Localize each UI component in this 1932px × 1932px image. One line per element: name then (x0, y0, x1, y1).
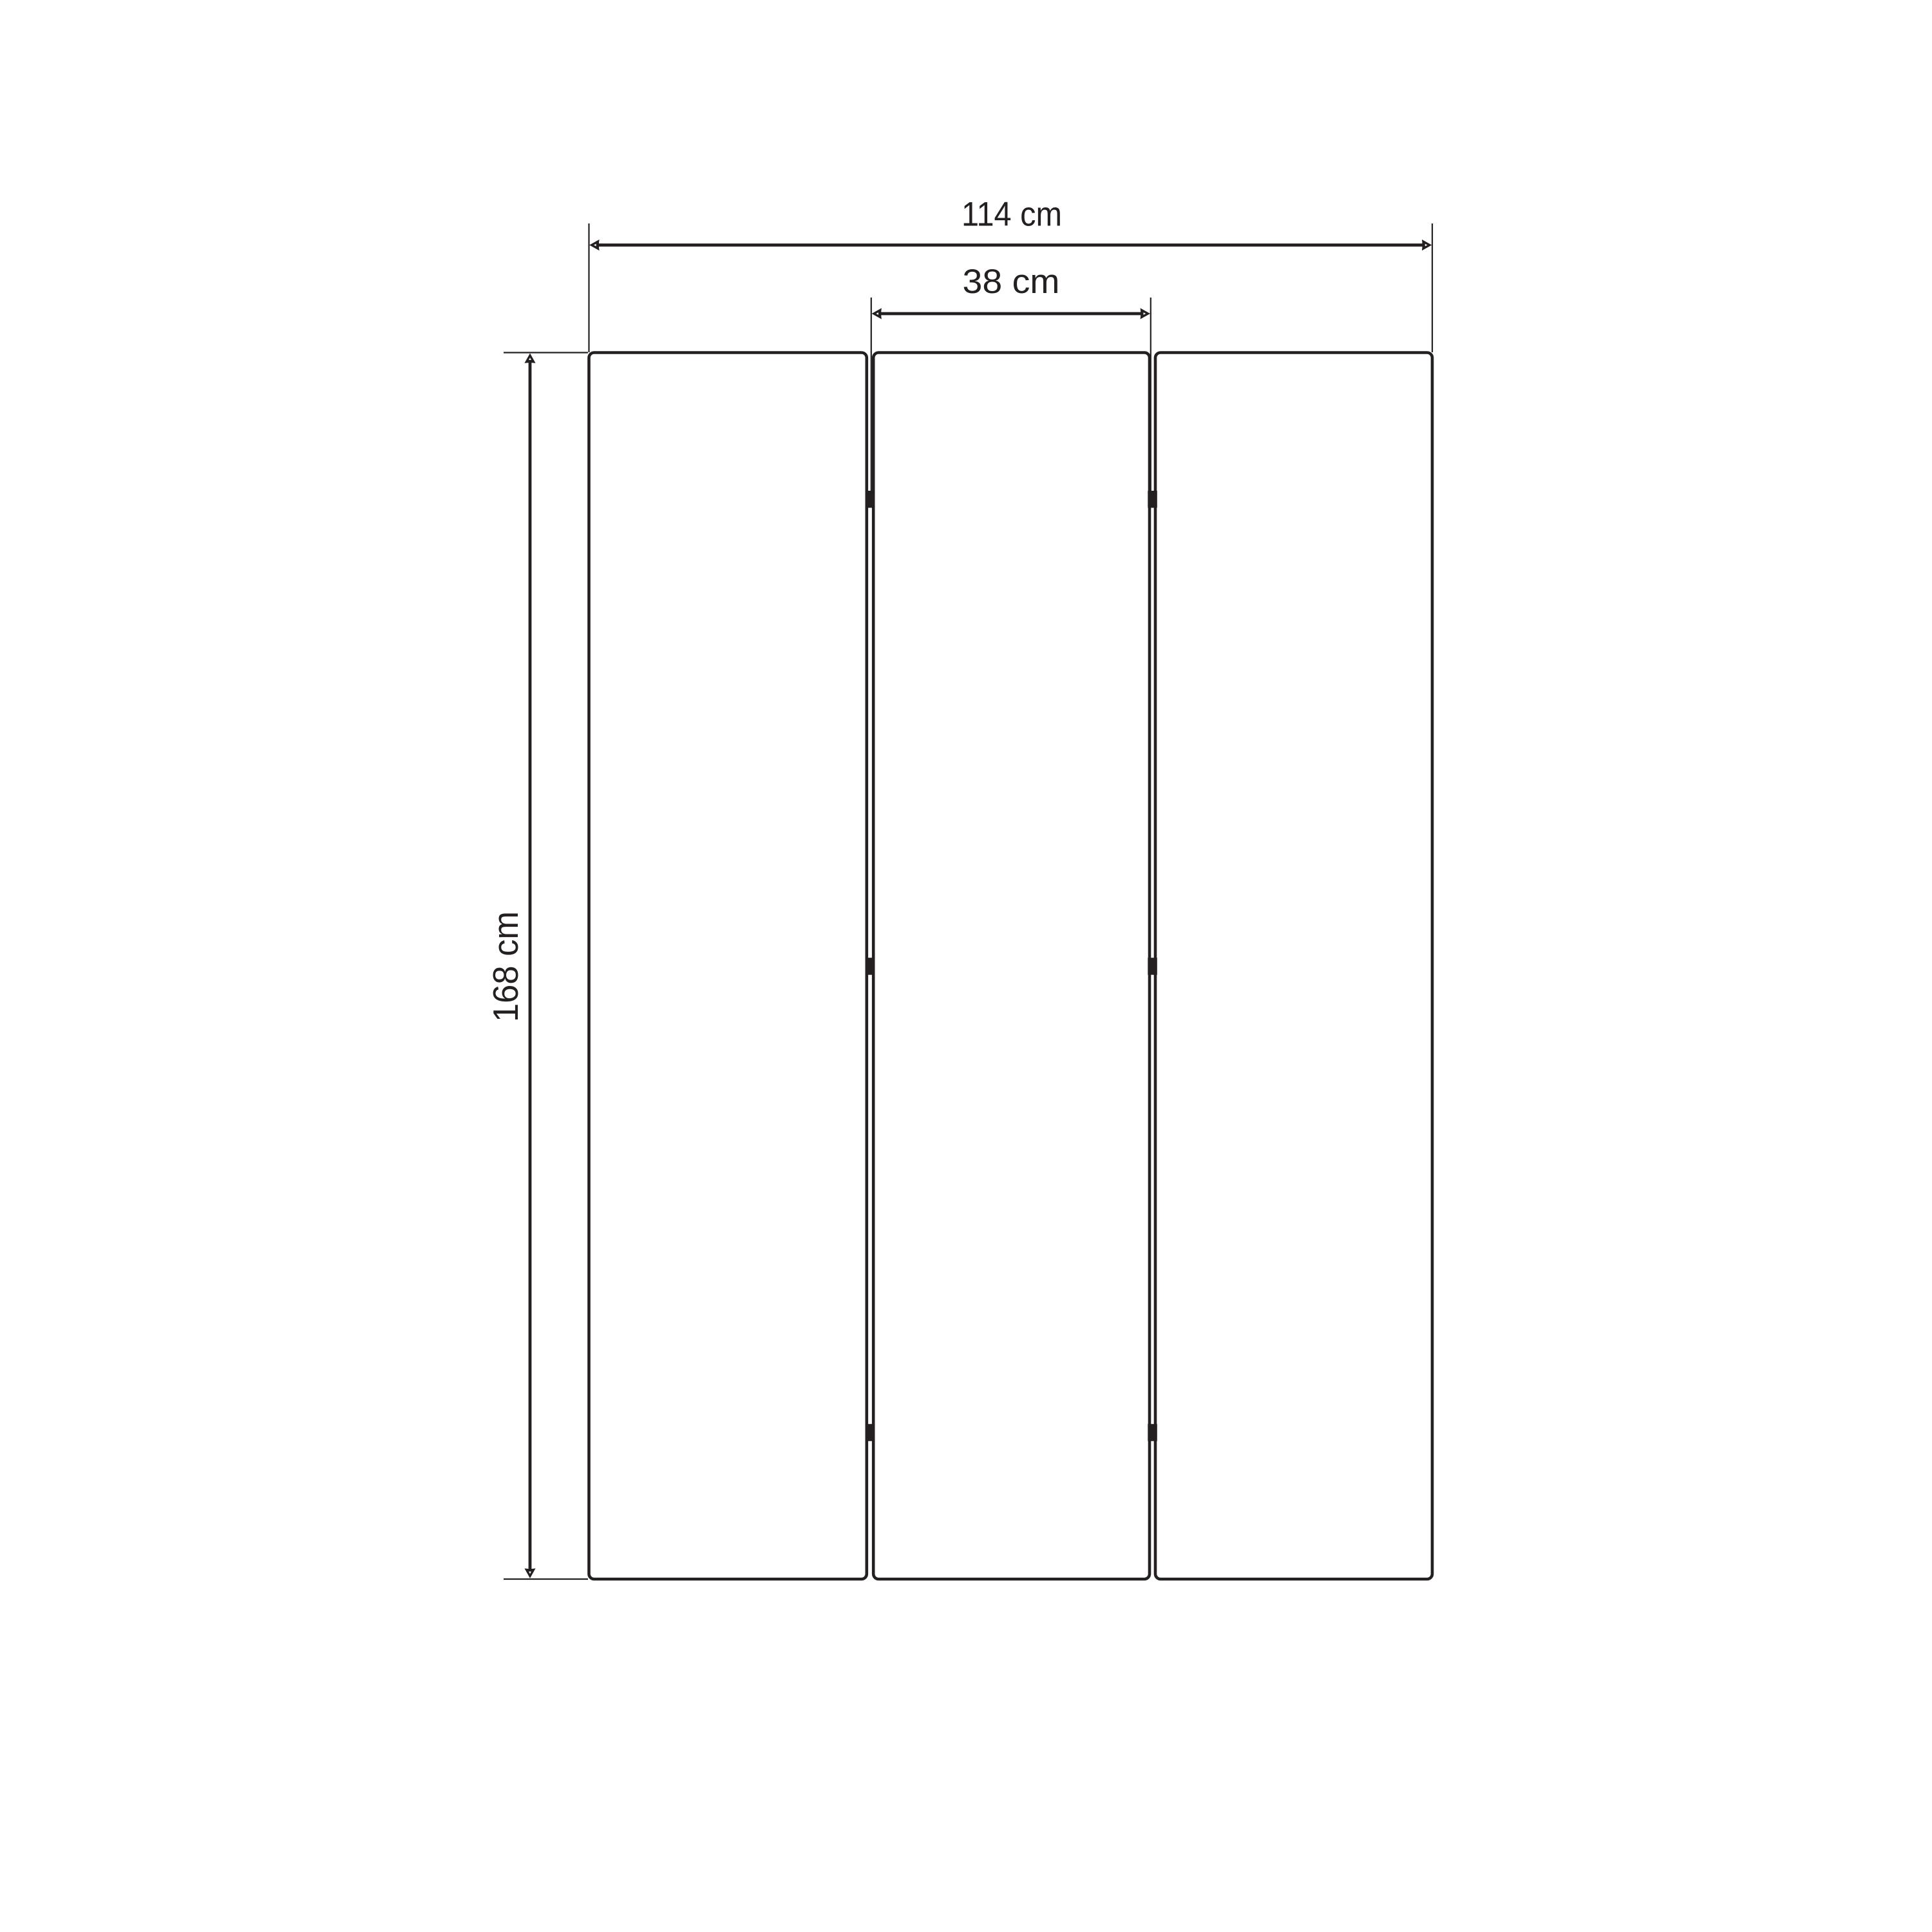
svg-text:38 cm: 38 cm (963, 263, 1060, 301)
svg-text:114 cm: 114 cm (961, 196, 1062, 234)
svg-text:168 cm: 168 cm (486, 911, 526, 1022)
